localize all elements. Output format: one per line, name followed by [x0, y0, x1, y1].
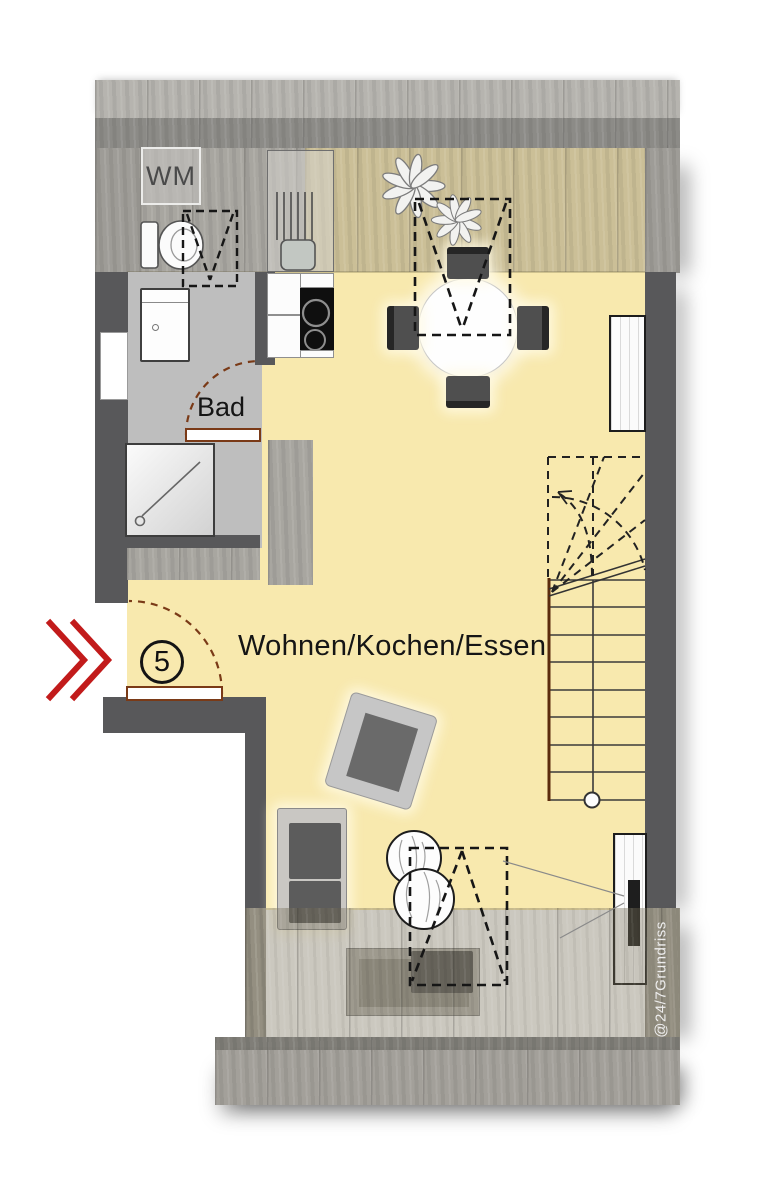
washing-machine: WM: [141, 147, 201, 205]
bathroom-label: Bad: [197, 392, 245, 423]
roof-band-top-inner: [95, 118, 680, 148]
dining-table: [418, 278, 518, 378]
watermark-label: @24/7Grundriss: [653, 920, 670, 1040]
wardrobe: [609, 315, 646, 432]
wall-right-upper-wood: [645, 148, 680, 273]
kitchen-cabinet-1: [267, 273, 301, 315]
kitchen-cabinet-2: [267, 315, 301, 358]
roof-band-bottom-outer: [215, 1050, 680, 1105]
wall-entry-horizontal: [103, 697, 266, 733]
plan-cutout: [95, 733, 245, 1200]
wall-entry-vertical: [245, 733, 266, 910]
dining-chair-right: [517, 306, 549, 350]
unit-number: 5: [154, 646, 170, 679]
dining-chair-left: [387, 306, 419, 350]
cooktop: [300, 288, 334, 350]
sink-cabinet-line: [142, 302, 188, 303]
counter-strip-bottom: [300, 350, 334, 358]
dining-chair-top: [447, 247, 489, 279]
wall-left-upper-wood: [95, 148, 140, 272]
unit-number-badge: 5: [140, 640, 184, 684]
entrance-arrow-icon: [50, 623, 108, 697]
bathroom-window: [100, 332, 128, 400]
wall-left: [95, 272, 128, 603]
knee-wall-kitchen: [268, 440, 313, 585]
sofa-left-cushion-1: [289, 823, 341, 879]
main-room-label: Wohnen/Kochen/Essen: [238, 630, 546, 663]
roof-band-top-outer: [95, 80, 680, 118]
shower: [125, 443, 215, 537]
dining-chair-bottom: [446, 376, 490, 408]
sink-cabinet: [140, 288, 190, 362]
floorplan-canvas: WM: [0, 0, 760, 1200]
wall-right: [645, 272, 676, 908]
sink-cabinet-knob: [152, 324, 159, 331]
roof-band-bottom-inner: [215, 1037, 680, 1050]
washing-machine-label: WM: [146, 161, 196, 192]
knee-wall-bathroom: [127, 548, 260, 580]
counter-strip-top: [300, 273, 334, 288]
armchair-cushion: [346, 713, 418, 792]
slope-floor-bottom: [245, 908, 680, 1037]
kitchen-counter-upper: [267, 150, 334, 272]
